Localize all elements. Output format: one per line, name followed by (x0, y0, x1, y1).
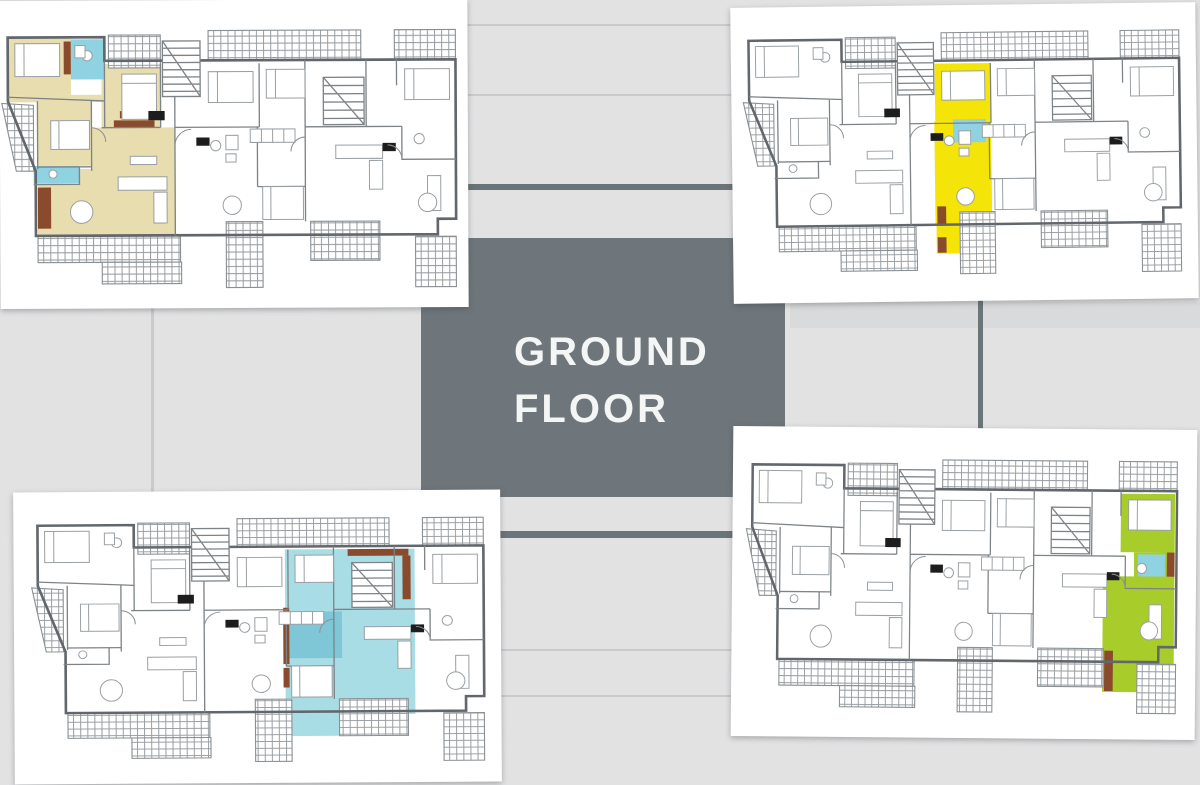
slide-title-line2: FLOOR (514, 381, 710, 438)
floor-plan-panel-top-right (730, 2, 1199, 304)
floor-plan-panel-bottom-right (731, 426, 1198, 740)
tile-seam-left-vertical (151, 307, 154, 493)
tile-shade-band-right (790, 302, 1200, 328)
ground-floor-banner: GROUND FLOOR (421, 238, 785, 497)
slide-title-line1: GROUND (514, 324, 710, 381)
floor-plan-panel-bottom-left (13, 490, 502, 785)
floor-plan-top-left-beige-unit (0, 13, 465, 307)
floor-plan-top-right-yellow-unit (740, 14, 1189, 293)
floor-plan-panel-top-left (0, 0, 469, 309)
floor-plan-bottom-left-cyan-unit (29, 502, 493, 781)
slide: { "slide": { "title_line1": "GROUND", "t… (0, 0, 1200, 769)
floor-plan-bottom-right-green-unit (743, 442, 1185, 732)
slide-title: GROUND FLOOR (514, 324, 710, 438)
tile-seam-right-vertical (978, 300, 983, 432)
